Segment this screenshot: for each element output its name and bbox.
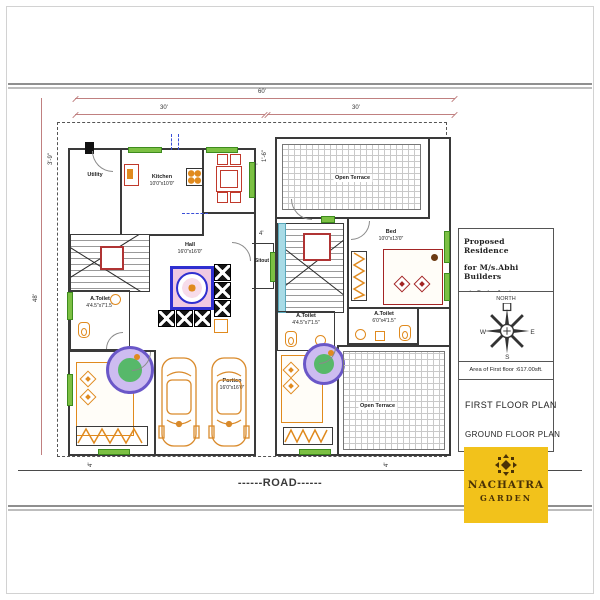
ground-floor-plan: Utility Kitchen 10'0"x10'0" Dining 8'0"x… (68, 148, 256, 456)
dim-tick-bottom-right: 4' (384, 463, 390, 467)
ceiling-box-icon (214, 319, 228, 333)
wall (417, 307, 419, 345)
hall-name: Hall (185, 242, 195, 248)
toilet-wc-icon (78, 322, 90, 338)
stair-landing (303, 233, 331, 261)
plan-title-ground-floor: GROUND FLOOR PLAN (465, 430, 560, 439)
room-label-bed: Bed 10'0"x13'0" (361, 229, 421, 243)
wardrobe-zigzag-icon (352, 252, 366, 300)
pillow-dot (288, 367, 294, 373)
wardrobe (76, 426, 148, 446)
room-label-a-toilet-right: A.Toilet 6'0"x4'1.5" (355, 311, 413, 325)
pillow-icon (414, 276, 431, 293)
pillow-dot (85, 394, 91, 400)
dim-line-depth (41, 98, 42, 455)
dim-label-left-half: 30' (160, 105, 168, 111)
compass-north-label: NORTH (459, 296, 553, 302)
hall-size: 16'0"x16'0" (160, 249, 220, 256)
kitchen-name: Kitchen (152, 174, 172, 180)
window (128, 147, 162, 153)
title-block-area: Area of First floor :617.00sft. (458, 361, 554, 380)
a-toilet-right-size: 6'0"x4'1.5" (355, 318, 413, 325)
opening-dashed (182, 213, 208, 214)
dim-line-total (75, 98, 455, 99)
ceiling-medallion-icon (170, 266, 214, 310)
window (206, 147, 238, 153)
wall (202, 150, 204, 234)
shower-icon (375, 331, 385, 341)
chair-icon (217, 154, 228, 165)
dim-label-total: 60' (258, 89, 266, 95)
wardrobe (283, 427, 333, 445)
chair-icon (217, 192, 228, 203)
window (67, 292, 73, 320)
pillow-icon (283, 378, 300, 395)
window (444, 231, 450, 263)
door-arc (92, 151, 113, 172)
sitout-name: Sitout (255, 258, 269, 264)
wall (347, 219, 349, 343)
dim-label-setback-left: 3'-9" (48, 153, 54, 165)
bed-icon (383, 249, 443, 305)
opening-dashed (171, 134, 179, 150)
pillow-icon (283, 362, 300, 379)
ceiling-light-icon (214, 300, 231, 317)
nachatra-logo-icon (494, 453, 518, 477)
project-line-2: for M/s.Abhi Builders (464, 263, 548, 281)
pillow-dot (85, 376, 91, 382)
pillow-dot (399, 281, 405, 287)
ceiling-light-icon (176, 310, 193, 327)
stair-landing (100, 246, 124, 270)
dim-label-depth: 48' (33, 294, 39, 302)
terrace-top-label: Open Terrace (333, 174, 372, 182)
toilet-wc-icon (285, 331, 297, 347)
floor-plan-sheet: 60' 30' 30' 48' 3'-9" 2' 2' 1'-6" 4' 4' … (0, 0, 600, 600)
a-toilet-right-name: A.Toilet (374, 311, 394, 317)
ceiling-light-icon (214, 264, 231, 281)
dim-tick-bottom-left: 4' (88, 463, 94, 467)
car-icon (209, 358, 249, 446)
stove-icon (186, 168, 203, 186)
room-label-sitout: Sitout (252, 258, 272, 265)
compass-rose-icon: W E S (479, 303, 535, 359)
window (321, 216, 335, 223)
pillow-icon (80, 389, 97, 406)
ceiling-light-icon (214, 282, 231, 299)
chair-icon (230, 154, 241, 165)
logo-name: NACHATRA (464, 479, 548, 491)
compass-south-label: S (505, 354, 510, 359)
wardrobe (351, 251, 367, 301)
kitchen-sink-icon (124, 164, 139, 186)
door-arc (232, 242, 251, 261)
wardrobe-zigzag-icon (284, 428, 332, 444)
first-floor-plan: Open Terrace Bed 10'0"x13'0" (275, 137, 451, 456)
bed-size: 10'0"x13'0" (361, 236, 421, 243)
window (299, 449, 331, 455)
medallion-ring (176, 272, 208, 304)
plan-title-first-floor: FIRST FLOOR PLAN (465, 400, 557, 410)
wall (202, 212, 254, 214)
washbasin-icon (355, 329, 366, 340)
room-label-a-toilet-left: A.Toilet 4'4.5"x7'1.5" (279, 313, 333, 327)
wardrobe-zigzag-icon (77, 427, 147, 445)
ceiling-light-icon (158, 310, 175, 327)
open-terrace-bottom: Open Terrace (339, 347, 449, 454)
dim-label-right-half: 30' (352, 105, 360, 111)
top-rule (8, 83, 592, 89)
terrace-bottom-label: Open Terrace (358, 402, 397, 410)
road-label: ------ROAD------ (180, 477, 380, 489)
compass-west-label: W (480, 329, 487, 336)
pillow-icon (80, 371, 97, 388)
a-toilet-left-name: A.Toilet (296, 313, 316, 319)
car-icon (159, 358, 199, 446)
logo-subtitle: GARDEN (464, 493, 548, 503)
room-label-kitchen: Kitchen 10'0"x10'0" (136, 174, 188, 188)
a-toilet-left-size: 4'4.5"x7'1.5" (279, 320, 333, 327)
dim-line-right-half (267, 114, 455, 115)
pillow-dot (419, 281, 425, 287)
nachatra-garden-logo: NACHATRA GARDEN (464, 447, 548, 523)
window (67, 374, 73, 406)
toilet-wc-icon (399, 325, 411, 341)
compass-east-label: E (530, 329, 535, 336)
window (444, 273, 450, 301)
title-block-plans: FIRST FLOOR PLAN GROUND FLOOR PLAN (458, 379, 554, 452)
stair-window-strip (278, 223, 286, 313)
terrace-hatch (343, 351, 445, 450)
title-block-compass: NORTH W E S (458, 291, 554, 362)
pillow-icon (394, 276, 411, 293)
window (249, 162, 255, 198)
kitchen-size: 10'0"x10'0" (136, 181, 188, 188)
utility-name: Utility (87, 172, 102, 178)
bed-name: Bed (386, 229, 396, 235)
dim-line-left-half (75, 114, 265, 115)
ceiling-light-icon (194, 310, 211, 327)
window (98, 449, 130, 455)
sitout: Sitout (252, 243, 274, 289)
cars (156, 354, 252, 452)
dining-table-icon (216, 166, 242, 192)
room-label-hall: Hall 16'0"x16'0" (160, 242, 220, 256)
project-line-1: Proposed Residence (464, 237, 548, 255)
wall (347, 307, 449, 309)
pillow-dot (288, 383, 294, 389)
washbasin-icon (110, 294, 121, 305)
title-block-project: Proposed Residence for M/s.Abhi Builders… (458, 228, 554, 292)
area-note-text: Area of First floor :617.00sft. (469, 367, 542, 373)
bolster-dot (431, 254, 438, 261)
room-label-utility: Utility (72, 172, 118, 179)
chair-icon (230, 192, 241, 203)
